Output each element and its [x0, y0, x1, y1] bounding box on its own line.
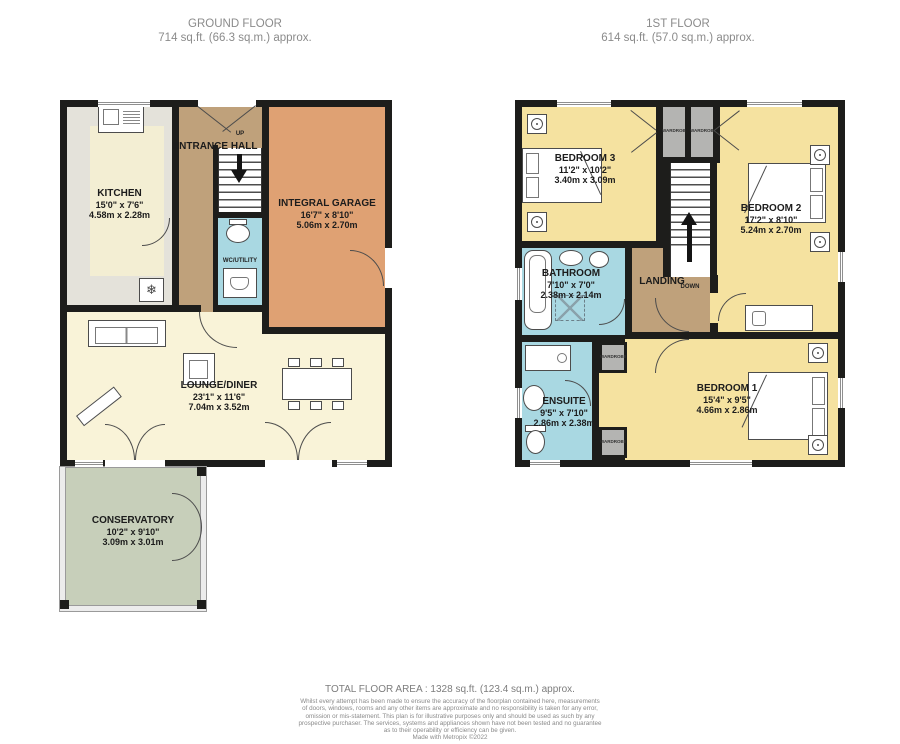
dining-chair: [332, 401, 344, 410]
conservatory-label: CONSERVATORY 10'2" x 9'10" 3.09m x 3.01m: [65, 515, 201, 548]
sofa-cushions: [95, 327, 158, 344]
wall: [213, 145, 218, 312]
stairs-arrow-stem: [237, 154, 242, 170]
washer-door: [230, 277, 249, 290]
shower-tray: [525, 345, 571, 371]
bedroom2-door-gap: [710, 293, 718, 323]
stairs-arrow-down-head: [231, 170, 247, 183]
wall-light-icon: [527, 212, 547, 232]
toilet-icon: [589, 251, 609, 268]
dining-chair: [310, 401, 322, 410]
desk-chair: [752, 311, 766, 326]
stairs-up-label: UP: [220, 131, 260, 137]
landing-label: LANDING: [622, 276, 702, 288]
bedroom2-window: [747, 100, 802, 107]
snowflake-icon: ❄: [146, 282, 157, 297]
total-floor-area: TOTAL FLOOR AREA : 1328 sq.ft. (123.4 sq…: [0, 684, 900, 695]
toilet-icon: [526, 430, 545, 454]
bedroom3-label: BEDROOM 3 11'2" x 10'2" 3.40m x 3.09m: [525, 153, 645, 186]
garage-side-door-opening: [385, 248, 392, 288]
first-floor-title: 1ST FLOOR: [528, 18, 828, 32]
pillow: [810, 168, 823, 192]
light-dot: [819, 241, 822, 244]
basin-icon: [559, 250, 583, 266]
light-dot: [819, 154, 822, 157]
bedroom2-label: BEDROOM 2 17'2" x 8'10" 5.24m x 2.70m: [710, 203, 832, 236]
wardrobe-label: WARDROBE: [690, 128, 714, 133]
wall: [262, 327, 392, 334]
pillow: [812, 408, 825, 436]
floorplan-page: { "floors": { "ground": { "title": "GROU…: [0, 0, 900, 744]
ground-floor-header: GROUND FLOOR 714 sq.ft. (66.3 sq.m.) app…: [85, 18, 385, 45]
armchair-seat: [189, 360, 208, 379]
bedroom1-label: BEDROOM 1 15'4" x 9'5" 4.66m x 2.86m: [667, 383, 787, 416]
wardrobe-label: WARDROBE: [600, 354, 626, 359]
washing-machine-icon: [223, 268, 257, 298]
light-dot: [817, 352, 820, 355]
bedroom1-window: [690, 460, 752, 467]
shower-head: [557, 353, 567, 363]
wardrobe-label: WARDROBE: [662, 128, 686, 133]
first-floor-header: 1ST FLOOR 614 sq.ft. (57.0 sq.m.) approx…: [528, 18, 828, 45]
lounge-diner-label: LOUNGE/DINER 23'1" x 11'6" 7.04m x 3.52m: [159, 380, 279, 413]
sofa: [88, 320, 166, 347]
sink-drainer: [123, 109, 140, 125]
ensuite-label: ENSUITE 9'5" x 7'10" 2.86m x 2.38m: [515, 396, 613, 429]
wall: [179, 305, 201, 312]
front-door-opening: [198, 100, 256, 107]
dining-chair: [288, 401, 300, 410]
disclaimer-line: Whilst every attempt has been made to en…: [0, 698, 900, 705]
conservatory-post: [197, 467, 206, 476]
wc-utility-label: WC/UTILITY: [198, 258, 282, 264]
wall: [522, 241, 663, 248]
light-dot: [817, 444, 820, 447]
dining-chair: [288, 358, 300, 367]
wall: [663, 163, 670, 277]
ground-floor-area: 714 sq.ft. (66.3 sq.m.) approx.: [85, 32, 385, 46]
disclaimer-line: prospective purchaser. The services, sys…: [0, 720, 900, 727]
light-dot: [536, 221, 539, 224]
fridge-freezer-icon: ❄: [139, 278, 164, 302]
conservatory-door-opening: [105, 460, 165, 467]
pillow: [812, 377, 825, 405]
dining-chair: [310, 358, 322, 367]
garden-door-opening: [265, 460, 332, 467]
wall: [172, 107, 179, 312]
lounge-window: [337, 460, 367, 467]
light-dot: [536, 123, 539, 126]
wall: [663, 157, 713, 163]
bedroom1-side-window: [838, 378, 845, 408]
kitchen-sink-unit: [98, 103, 144, 133]
lounge-window: [75, 460, 103, 467]
conservatory-post: [197, 600, 206, 609]
first-floor-plan: DOWN WARDROBE WARDROBE WARDROBE WARDROBE: [515, 100, 845, 467]
first-floor-area: 614 sq.ft. (57.0 sq.m.) approx.: [528, 32, 828, 46]
ground-floor-title: GROUND FLOOR: [85, 18, 385, 32]
ground-floor-plan: UP ❄: [60, 100, 392, 467]
ensuite-window: [530, 460, 560, 467]
wall: [522, 335, 625, 342]
wall: [67, 305, 179, 312]
dining-chair: [332, 358, 344, 367]
wall-light-icon: [810, 145, 830, 165]
wall: [625, 248, 632, 298]
bathroom-label: BATHROOM 7'10" x 7'0" 2.38m x 2.14m: [517, 268, 625, 301]
wall: [625, 332, 655, 339]
footer: TOTAL FLOOR AREA : 1328 sq.ft. (123.4 sq…: [0, 684, 900, 742]
wardrobe-label: WARDROBE: [600, 439, 626, 444]
wall-light-icon: [808, 343, 828, 363]
disclaimer-line: omission or mis-statement. This plan is …: [0, 713, 900, 720]
bedroom3-window: [557, 100, 611, 107]
wall: [691, 332, 838, 339]
bedroom2-side-window: [838, 252, 845, 282]
credit-line: Made with Metropix ©2022: [0, 734, 900, 741]
wall: [218, 212, 262, 218]
sink-bowl: [103, 109, 119, 125]
conservatory-room: CONSERVATORY 10'2" x 9'10" 3.09m x 3.01m: [60, 467, 206, 611]
wall-light-icon: [808, 435, 828, 455]
kitchen-window: [98, 100, 150, 107]
stairs-arrow-stem: [687, 224, 692, 262]
conservatory-post: [60, 600, 69, 609]
wall-light-icon: [527, 114, 547, 134]
garage-label: INTEGRAL GARAGE 16'7" x 8'10" 5.06m x 2.…: [267, 198, 387, 231]
toilet-icon: [226, 224, 250, 243]
disclaimer-line: of doors, windows, rooms and any other i…: [0, 705, 900, 712]
dining-table: [282, 368, 352, 400]
kitchen-label: KITCHEN 15'0" x 7'6" 4.58m x 2.28m: [67, 188, 172, 221]
entrance-hall-label: ENTRANCE HALL: [155, 141, 275, 153]
desk: [745, 305, 813, 331]
wall: [218, 305, 262, 312]
